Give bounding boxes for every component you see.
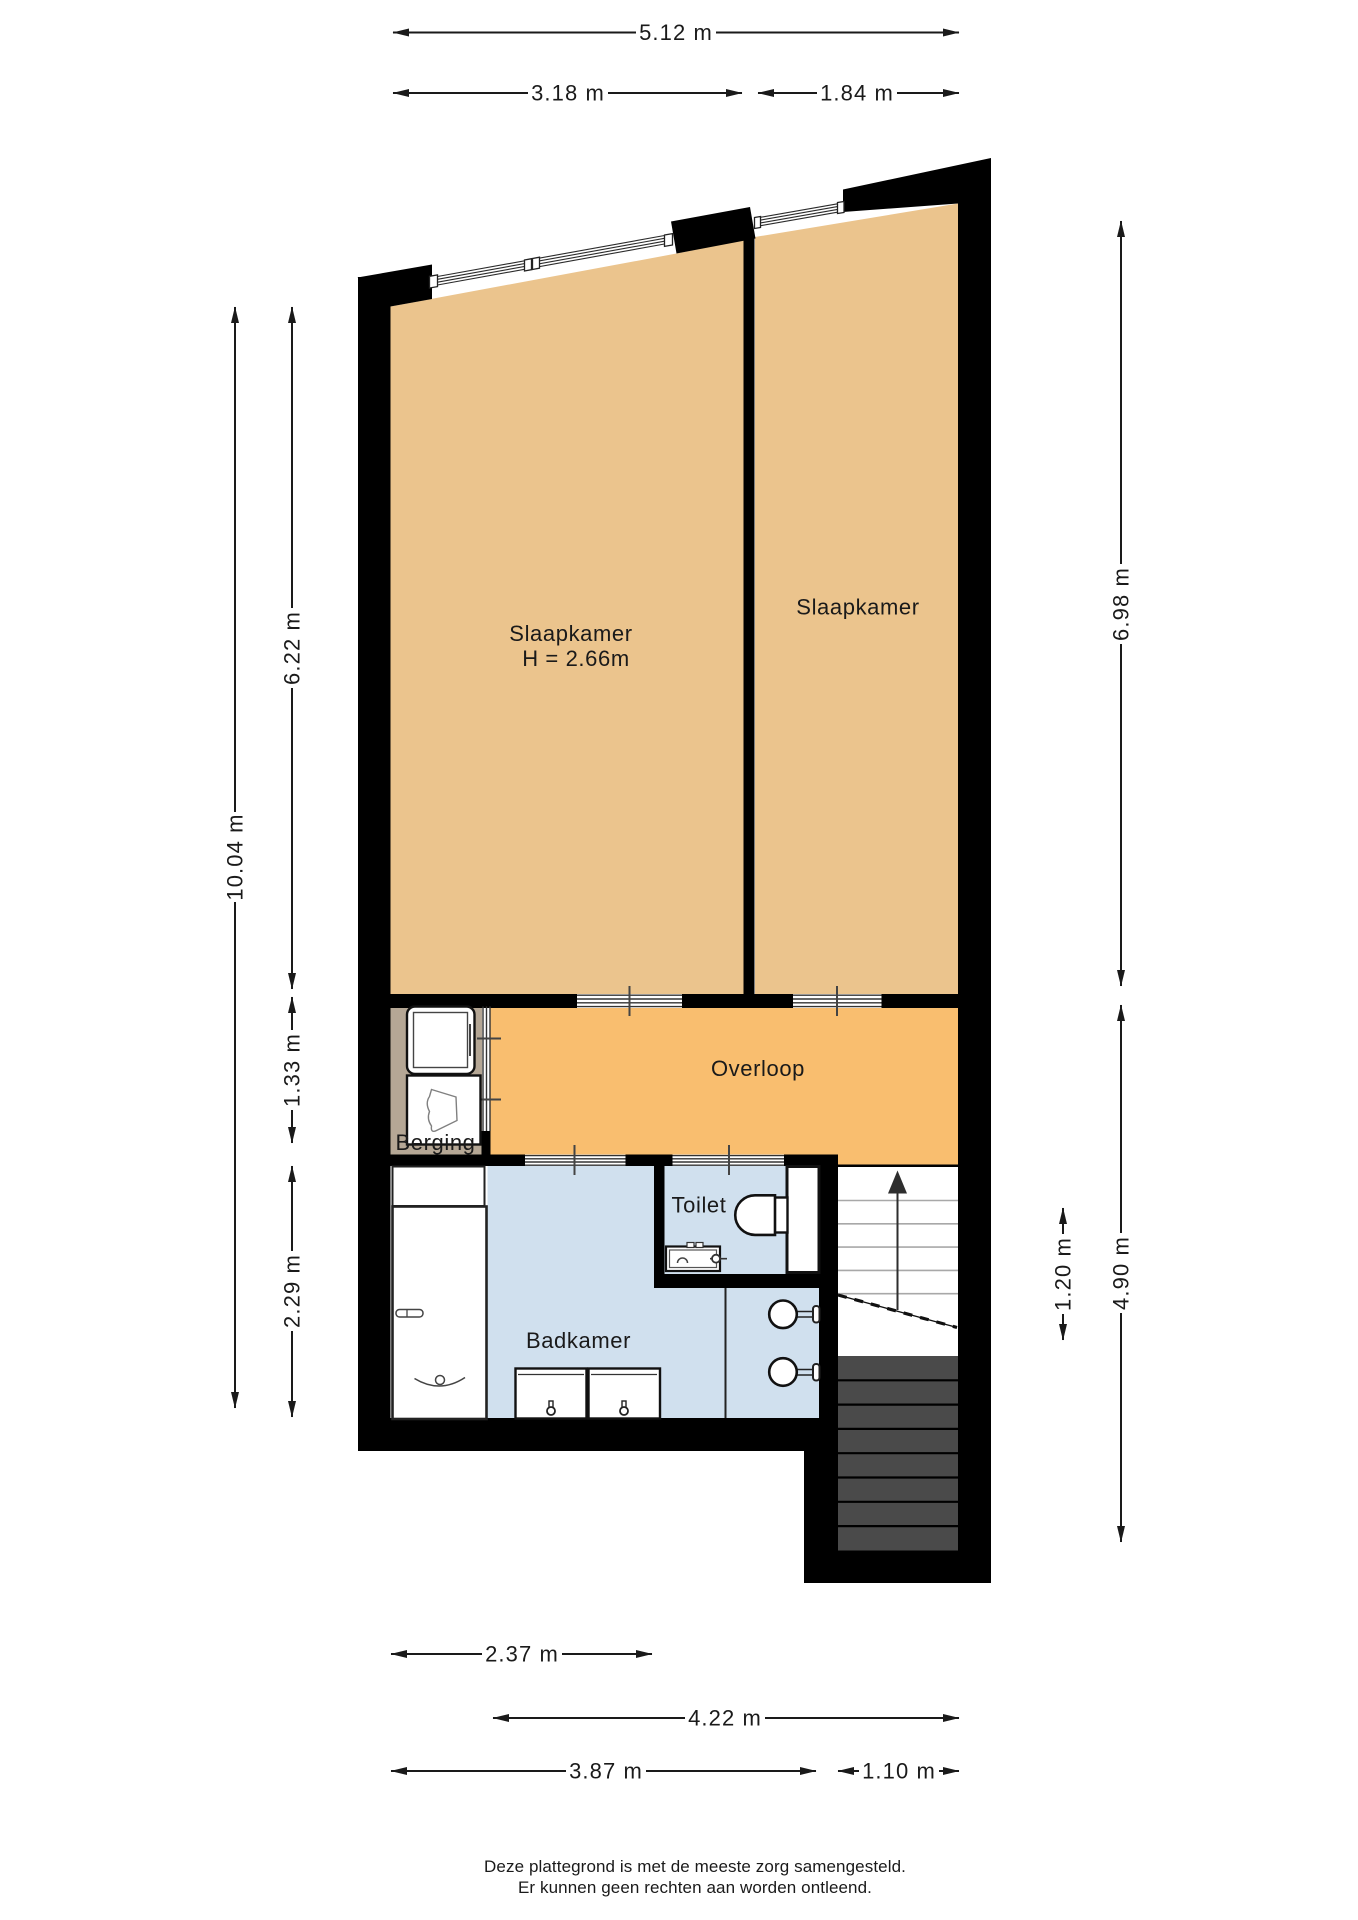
svg-text:Toilet: Toilet [672, 1193, 727, 1218]
svg-text:1.10 m: 1.10 m [862, 1759, 936, 1784]
svg-text:3.18 m: 3.18 m [531, 81, 605, 106]
svg-text:Er kunnen geen rechten aan wor: Er kunnen geen rechten aan worden ontlee… [518, 1878, 872, 1897]
svg-text:4.22 m: 4.22 m [688, 1706, 762, 1731]
svg-text:1.84 m: 1.84 m [820, 81, 894, 106]
svg-text:1.20 m: 1.20 m [1051, 1237, 1076, 1311]
svg-text:3.87 m: 3.87 m [569, 1759, 643, 1784]
svg-text:4.90 m: 4.90 m [1109, 1236, 1134, 1310]
svg-text:6.22 m: 6.22 m [280, 611, 305, 685]
svg-text:6.98 m: 6.98 m [1109, 567, 1134, 641]
svg-text:Slaapkamer: Slaapkamer [796, 595, 919, 620]
svg-text:Deze plattegrond is met de mee: Deze plattegrond is met de meeste zorg s… [484, 1857, 906, 1876]
svg-text:1.33 m: 1.33 m [280, 1033, 305, 1107]
svg-text:5.12 m: 5.12 m [639, 20, 713, 45]
svg-text:Overloop: Overloop [711, 1056, 805, 1081]
svg-text:2.37 m: 2.37 m [485, 1642, 559, 1667]
svg-text:Berging: Berging [395, 1130, 475, 1155]
svg-text:Badkamer: Badkamer [526, 1328, 631, 1353]
svg-text:2.29 m: 2.29 m [280, 1254, 305, 1328]
svg-text:Slaapkamer: Slaapkamer [509, 621, 632, 646]
svg-text:10.04 m: 10.04 m [223, 813, 248, 900]
svg-text:H = 2.66m: H = 2.66m [522, 646, 630, 671]
